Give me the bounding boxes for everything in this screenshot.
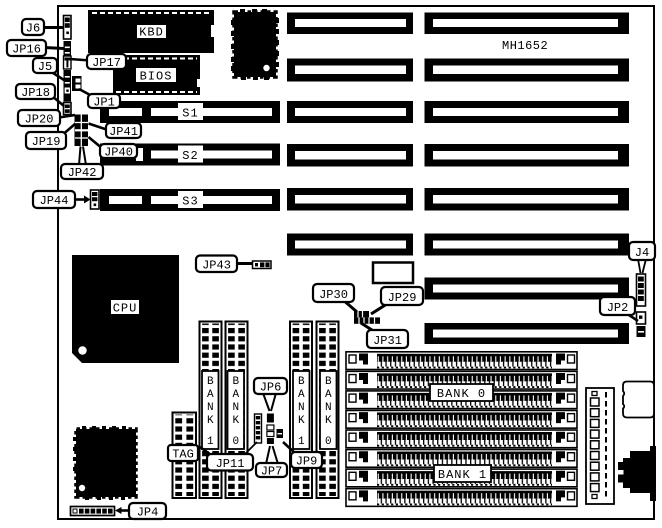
svg-text:JP2: JP2 [607, 301, 629, 315]
svg-text:CPU: CPU [113, 302, 138, 316]
svg-text:0: 0 [232, 436, 239, 448]
svg-text:JP7: JP7 [261, 465, 283, 479]
svg-text:JP31: JP31 [373, 334, 402, 348]
svg-text:JP44: JP44 [40, 194, 69, 208]
svg-text:J6: J6 [26, 22, 40, 36]
svg-text:S3: S3 [182, 195, 198, 209]
svg-text:JP29: JP29 [388, 291, 417, 305]
svg-text:JP11: JP11 [216, 457, 245, 471]
svg-text:KBD: KBD [139, 26, 164, 40]
svg-text:K: K [207, 415, 214, 427]
svg-text:J5: J5 [38, 60, 52, 74]
svg-text:JP43: JP43 [202, 259, 231, 273]
svg-text:JP42: JP42 [68, 166, 97, 180]
svg-text:BANK 1: BANK 1 [438, 468, 487, 482]
svg-text:A: A [298, 389, 305, 401]
svg-text:B: B [298, 376, 305, 388]
svg-text:JP17: JP17 [92, 56, 121, 70]
svg-text:JP9: JP9 [296, 455, 318, 469]
svg-text:MH1652: MH1652 [502, 39, 548, 53]
svg-text:JP20: JP20 [25, 113, 54, 127]
svg-text:S1: S1 [182, 107, 198, 121]
svg-text:N: N [207, 402, 214, 414]
svg-text:B: B [207, 376, 214, 388]
svg-text:JP18: JP18 [21, 86, 50, 100]
svg-text:J4: J4 [635, 246, 649, 260]
svg-text:1: 1 [298, 436, 305, 448]
svg-text:JP1: JP1 [93, 96, 115, 110]
svg-text:0: 0 [325, 436, 332, 448]
svg-text:1: 1 [207, 436, 214, 448]
svg-text:JP30: JP30 [319, 288, 348, 302]
svg-text:S2: S2 [182, 149, 198, 163]
svg-text:JP40: JP40 [104, 146, 133, 160]
svg-text:N: N [232, 402, 239, 414]
svg-text:BANK 0: BANK 0 [437, 387, 486, 401]
svg-text:N: N [298, 402, 305, 414]
svg-text:BIOS: BIOS [140, 70, 173, 84]
svg-text:K: K [325, 415, 332, 427]
svg-text:JP16: JP16 [12, 43, 41, 57]
svg-text:B: B [325, 376, 332, 388]
svg-text:K: K [298, 415, 305, 427]
svg-text:A: A [325, 389, 332, 401]
svg-text:JP6: JP6 [260, 381, 282, 395]
svg-text:N: N [325, 402, 332, 414]
svg-text:JP19: JP19 [32, 135, 61, 149]
svg-text:A: A [232, 389, 239, 401]
svg-text:A: A [207, 389, 214, 401]
svg-text:K: K [232, 415, 239, 427]
svg-text:JP4: JP4 [137, 506, 159, 520]
svg-text:TAG: TAG [172, 448, 194, 462]
svg-text:JP41: JP41 [109, 125, 138, 139]
svg-text:B: B [232, 376, 239, 388]
